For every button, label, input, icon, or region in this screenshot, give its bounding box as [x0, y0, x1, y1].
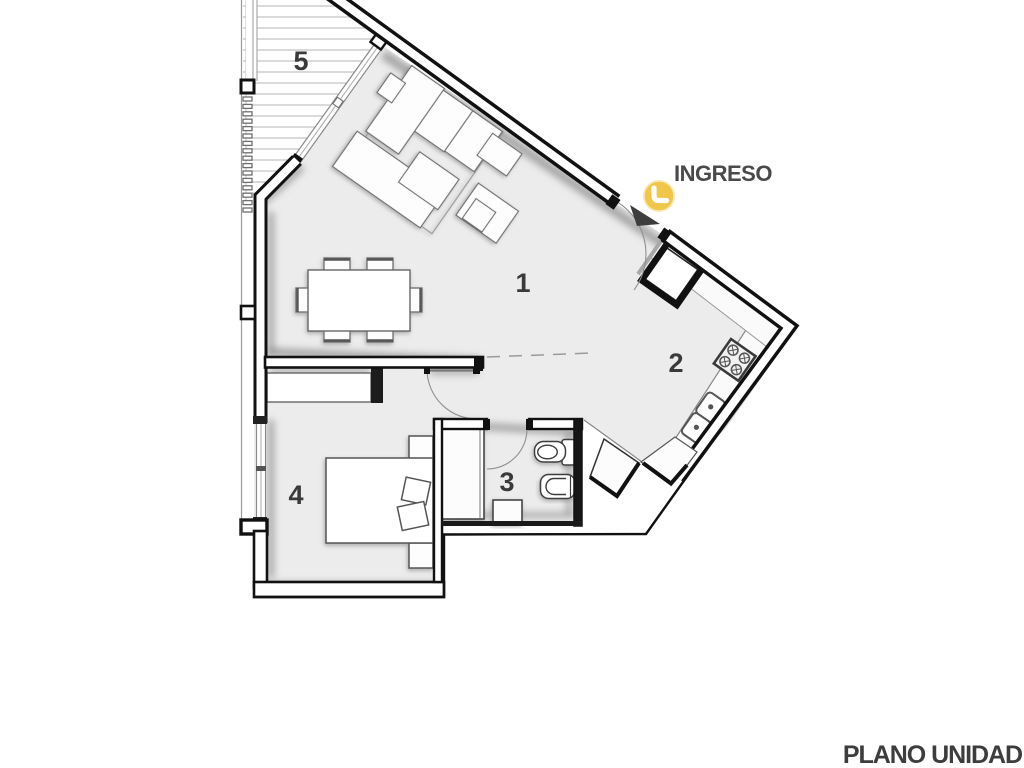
svg-text:3: 3 [499, 467, 514, 497]
svg-text:2: 2 [668, 348, 683, 378]
svg-text:5: 5 [293, 46, 308, 76]
svg-text:PLANO UNIDAD: PLANO UNIDAD [843, 741, 1022, 768]
svg-text:1: 1 [515, 268, 530, 298]
svg-text:INGRESO: INGRESO [674, 161, 772, 186]
svg-text:4: 4 [288, 480, 303, 510]
